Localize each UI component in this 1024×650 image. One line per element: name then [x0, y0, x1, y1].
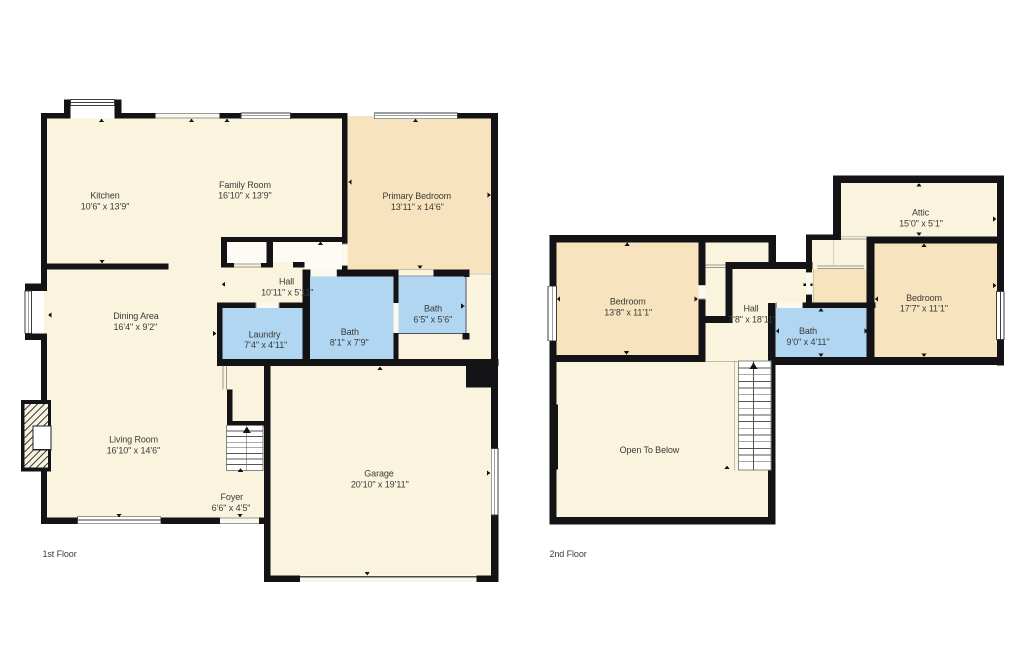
svg-text:Dining Area: Dining Area	[113, 311, 159, 321]
svg-text:Family Room: Family Room	[219, 180, 271, 190]
svg-text:Open To Below: Open To Below	[620, 445, 680, 455]
svg-text:Bedroom: Bedroom	[906, 293, 942, 303]
svg-text:16’10" x 13’9": 16’10" x 13’9"	[218, 191, 272, 201]
svg-text:Living Room: Living Room	[109, 435, 158, 445]
svg-text:8’1" x 7’9": 8’1" x 7’9"	[330, 338, 369, 348]
svg-text:Laundry: Laundry	[249, 329, 281, 339]
svg-text:Garage: Garage	[364, 469, 394, 479]
svg-text:13’8" x 11’1": 13’8" x 11’1"	[604, 308, 652, 318]
svg-text:7’4" x 4’11": 7’4" x 4’11"	[244, 340, 287, 350]
svg-text:Hall: Hall	[743, 304, 758, 314]
svg-text:6’5" x 5’6": 6’5" x 5’6"	[413, 314, 452, 324]
svg-text:16’10" x 14’6": 16’10" x 14’6"	[107, 446, 161, 456]
svg-text:6’6" x 4’5": 6’6" x 4’5"	[212, 503, 251, 513]
svg-text:Foyer: Foyer	[221, 492, 244, 502]
svg-text:10’6" x 13’9": 10’6" x 13’9"	[81, 202, 130, 212]
svg-text:Bath: Bath	[341, 327, 359, 337]
svg-text:Bedroom: Bedroom	[610, 297, 646, 307]
svg-text:Attic: Attic	[912, 208, 930, 218]
svg-text:9’0" x 4’11": 9’0" x 4’11"	[786, 337, 829, 347]
svg-text:20’10" x 19’11": 20’10" x 19’11"	[351, 479, 409, 489]
svg-text:7’8" x 18’11": 7’8" x 18’11"	[728, 314, 776, 324]
svg-text:1st Floor: 1st Floor	[43, 549, 77, 559]
svg-text:Hall: Hall	[279, 277, 294, 287]
svg-text:Primary Bedroom: Primary Bedroom	[383, 191, 452, 201]
svg-text:13’11" x 14’6": 13’11" x 14’6"	[391, 202, 444, 212]
svg-text:10’11" x 5’11": 10’11" x 5’11"	[261, 288, 313, 298]
svg-text:Kitchen: Kitchen	[90, 191, 119, 201]
svg-text:Bath: Bath	[799, 326, 817, 336]
svg-text:15’0" x 5’1": 15’0" x 5’1"	[899, 218, 943, 228]
svg-text:Bath: Bath	[424, 304, 442, 314]
svg-text:16’4" x 9’2": 16’4" x 9’2"	[113, 322, 157, 332]
svg-text:2nd Floor: 2nd Floor	[550, 549, 587, 559]
svg-text:17’7" x 11’1": 17’7" x 11’1"	[900, 304, 948, 314]
